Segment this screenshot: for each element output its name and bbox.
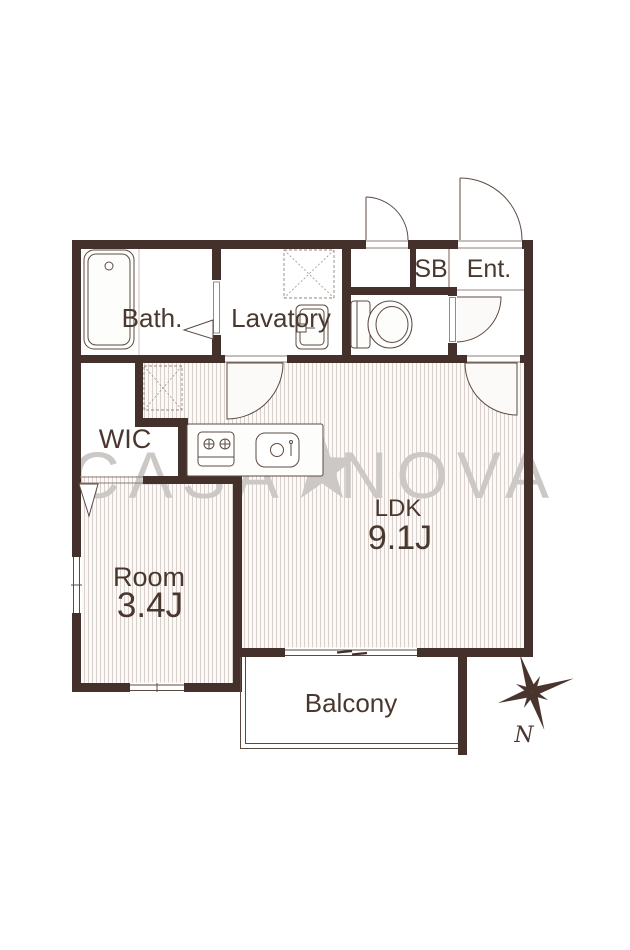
bath-label: Bath. (122, 303, 183, 333)
compass-north-label: N (513, 723, 534, 748)
wic-label: WIC (99, 424, 151, 454)
bathtub-icon (84, 249, 139, 355)
entrance-door-icon (460, 178, 522, 240)
washing-machine-space-icon (284, 250, 334, 298)
bath-folding-door-icon (184, 280, 221, 339)
room-area-label: 3.4J (117, 586, 183, 625)
toilet-door-swing (456, 297, 501, 342)
floorplan-svg: CASA NOVA (0, 0, 630, 950)
toilet-door-icon (448, 296, 457, 343)
balcony-label: Balcony (305, 688, 398, 718)
stove-icon (198, 432, 234, 466)
kitchen-counter-icon (187, 424, 323, 476)
shoe-box-label: SB (414, 255, 447, 283)
room-bottom-window (130, 683, 184, 693)
sink-icon (256, 433, 299, 467)
wic-floor-upper (81, 363, 135, 418)
ldk-label: LDK (375, 495, 422, 522)
room-floor (81, 648, 233, 683)
floor-areas (81, 363, 524, 683)
floorplan-page: CASA NOVA (0, 0, 630, 950)
utility-door-icon (366, 197, 408, 240)
toilet-icon (351, 301, 412, 348)
ldk-sliding-window (285, 648, 417, 658)
room-side-window (71, 557, 82, 613)
lavatory-label: Lavatory (231, 303, 331, 333)
entrance-label: Ent. (467, 255, 511, 283)
ldk-area-label: 9.1J (368, 519, 432, 557)
